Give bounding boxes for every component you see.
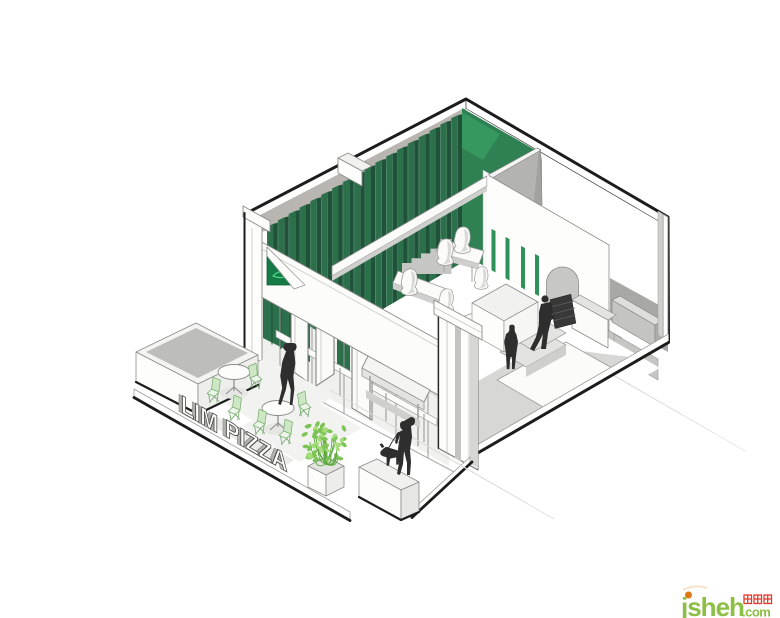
svg-text:.com: .com [742,605,770,618]
